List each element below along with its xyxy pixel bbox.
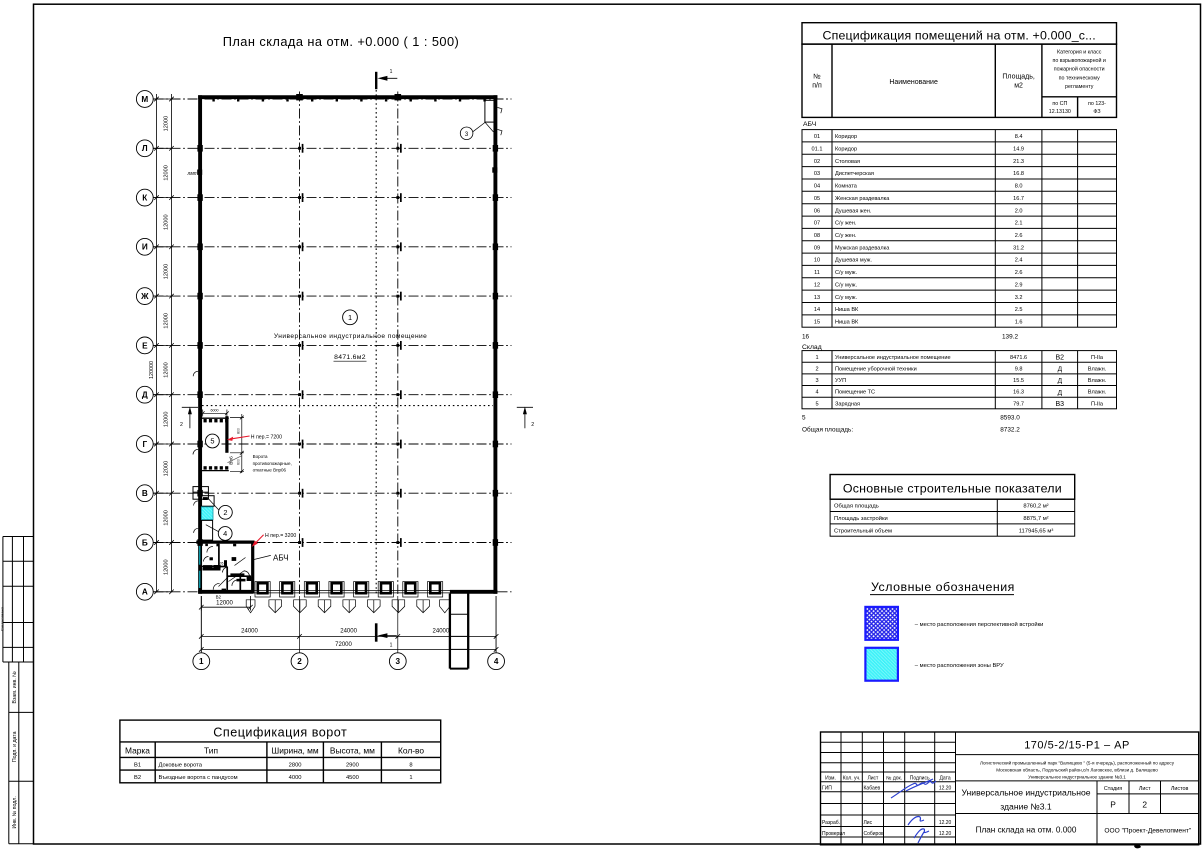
svg-text:Высота, мм: Высота, мм	[330, 745, 375, 755]
svg-text:П-IIа: П-IIа	[1091, 355, 1104, 361]
svg-text:Помещение ТС: Помещение ТС	[835, 390, 875, 396]
svg-text:05: 05	[814, 196, 820, 202]
svg-text:06: 06	[814, 208, 820, 214]
svg-text:05: 05	[220, 561, 224, 565]
svg-text:8.0: 8.0	[1015, 184, 1023, 190]
svg-text:117945,65 м³: 117945,65 м³	[1019, 528, 1054, 534]
svg-text:13: 13	[814, 295, 820, 301]
svg-text:8.4: 8.4	[1015, 134, 1023, 140]
svg-text:2.4: 2.4	[1015, 258, 1023, 264]
svg-text:Условные обозначения: Условные обозначения	[871, 580, 1015, 594]
svg-text:В2: В2	[134, 775, 141, 781]
svg-text:Склад: Склад	[802, 344, 822, 351]
svg-text:откатные Впр06: откатные Впр06	[253, 468, 287, 473]
svg-text:1: 1	[348, 313, 352, 322]
svg-text:16.7: 16.7	[1013, 196, 1024, 202]
svg-text:Н пер.= 3200: Н пер.= 3200	[265, 533, 296, 539]
svg-text:1: 1	[199, 657, 204, 666]
svg-text:8593.0: 8593.0	[1000, 414, 1020, 421]
svg-text:В1: В1	[134, 762, 141, 768]
svg-text:12000: 12000	[164, 313, 170, 329]
svg-text:по взрывопожарной и: по взрывопожарной и	[1053, 57, 1106, 64]
svg-text:11: 11	[814, 270, 820, 276]
svg-text:2.5: 2.5	[1015, 307, 1023, 313]
svg-text:Логистический промышленный пар: Логистический промышленный парк "Валищев…	[980, 759, 1175, 765]
svg-text:2: 2	[531, 422, 534, 428]
svg-text:2.1: 2.1	[1015, 221, 1023, 227]
svg-text:В2: В2	[216, 595, 222, 600]
svg-text:Собиров: Собиров	[864, 831, 885, 837]
svg-text:1: 1	[390, 69, 393, 75]
svg-text:С/у жен.: С/у жен.	[835, 221, 857, 227]
svg-text:16.8: 16.8	[1013, 171, 1024, 177]
svg-text:Д: Д	[1058, 389, 1063, 396]
svg-text:по техническому: по техническому	[1059, 75, 1100, 81]
svg-text:12.20: 12.20	[939, 831, 952, 837]
svg-text:Д: Д	[142, 391, 148, 400]
svg-text:А: А	[142, 588, 148, 597]
svg-text:9.8: 9.8	[1015, 366, 1023, 372]
svg-text:п/п: п/п	[812, 83, 822, 90]
svg-text:12000: 12000	[164, 412, 170, 428]
svg-text:– место расположения зоны ВРУ: – место расположения зоны ВРУ	[915, 663, 1004, 669]
svg-text:Р: Р	[1110, 800, 1116, 810]
svg-text:8760,2 м²: 8760,2 м²	[1023, 504, 1048, 510]
svg-text:Ворота: Ворота	[253, 454, 268, 459]
svg-text:Комната: Комната	[835, 184, 858, 190]
svg-text:5: 5	[815, 401, 818, 407]
svg-text:8471.6: 8471.6	[1010, 355, 1027, 361]
svg-text:Общая площадь:: Общая площадь:	[802, 426, 853, 434]
svg-text:П-IIа: П-IIа	[1091, 401, 1104, 407]
svg-text:3: 3	[815, 378, 818, 384]
svg-text:Спецификация помещений на отм.: Спецификация помещений на отм. +0.000_с.…	[823, 29, 1096, 43]
svg-text:Душевая жен.: Душевая жен.	[835, 208, 872, 214]
svg-text:600: 600	[237, 459, 241, 465]
svg-text:Площадь,: Площадь,	[1002, 74, 1034, 81]
svg-text:Д: Д	[1058, 366, 1063, 373]
svg-text:72000: 72000	[335, 642, 352, 648]
svg-text:М: М	[141, 95, 148, 104]
svg-text:Лист: Лист	[867, 775, 879, 781]
svg-text:12.20: 12.20	[939, 785, 952, 791]
svg-text:Ниша ВК: Ниша ВК	[835, 307, 859, 313]
svg-text:– место расположения перспекти: – место расположения перспективной встро…	[915, 621, 1044, 628]
svg-text:03: 03	[814, 171, 820, 177]
svg-text:Категория и класс: Категория и класс	[1057, 50, 1102, 56]
svg-text:ФЗ: ФЗ	[1093, 109, 1100, 115]
svg-text:№: №	[813, 74, 821, 81]
svg-text:Коридор: Коридор	[835, 147, 857, 153]
svg-text:1: 1	[815, 355, 818, 361]
svg-text:Помещение уборочной техники: Помещение уборочной техники	[835, 365, 917, 372]
svg-text:УУП: УУП	[835, 378, 846, 384]
svg-text:12000: 12000	[164, 264, 170, 280]
svg-text:800: 800	[237, 428, 241, 434]
svg-text:Мужская раздевалка: Мужская раздевалка	[835, 245, 890, 251]
svg-text:170/5-2/15-Р1 – АР: 170/5-2/15-Р1 – АР	[1024, 740, 1130, 752]
svg-text:Московская область, Подольский: Московская область, Подольский район,с/п…	[996, 766, 1158, 772]
svg-text:04: 04	[814, 184, 820, 190]
svg-text:09: 09	[814, 245, 820, 251]
svg-text:В2: В2	[1056, 354, 1065, 361]
svg-text:Спецификация ворот: Спецификация ворот	[213, 726, 347, 740]
svg-text:С/у муж.: С/у муж.	[835, 295, 857, 301]
svg-text:Столовая: Столовая	[835, 159, 860, 165]
svg-text:1: 1	[390, 642, 393, 648]
svg-text:здание №3.1: здание №3.1	[1000, 802, 1052, 812]
svg-text:пожарной опасности: пожарной опасности	[1054, 66, 1105, 73]
svg-text:4: 4	[494, 657, 499, 666]
svg-text:АБЧ: АБЧ	[803, 121, 816, 128]
svg-text:регламенту: регламенту	[1065, 84, 1094, 90]
svg-text:2.6: 2.6	[1015, 233, 1023, 239]
svg-text:Въездные ворота с пандусом: Въездные ворота с пандусом	[159, 775, 238, 781]
svg-text:Универсальное индустриальное з: Универсальное индустриальное здание №3.1	[1028, 774, 1126, 779]
svg-text:Стадия: Стадия	[1104, 786, 1122, 792]
svg-text:Проверил: Проверил	[822, 831, 845, 837]
svg-text:31.2: 31.2	[1013, 245, 1024, 251]
svg-text:План склада на отм. 0.000: План склада на отм. 0.000	[976, 825, 1077, 834]
svg-text:12000: 12000	[164, 214, 170, 230]
svg-text:8732.2: 8732.2	[1000, 427, 1020, 434]
svg-text:Универсальное индустриальное п: Универсальное индустриальное помещение	[274, 333, 427, 340]
svg-text:Влажн.: Влажн.	[1088, 366, 1107, 372]
svg-text:79.7: 79.7	[1013, 401, 1024, 407]
svg-text:21.3: 21.3	[1013, 159, 1024, 165]
svg-text:План склада на отм. +0.000 ( 1: План склада на отм. +0.000 ( 1 : 500)	[223, 34, 460, 49]
svg-text:Ниша ВК: Ниша ВК	[835, 320, 859, 326]
svg-text:Наименование: Наименование	[889, 79, 938, 86]
svg-text:Кол. уч.: Кол. уч.	[843, 775, 861, 781]
svg-text:Основные строительные показате: Основные строительные показатели	[843, 482, 1062, 496]
svg-text:4000: 4000	[289, 775, 302, 781]
svg-text:Разраб.: Разраб.	[822, 820, 840, 826]
svg-text:08: 08	[814, 233, 820, 239]
svg-text:Кол-во: Кол-во	[398, 745, 424, 755]
svg-text:12000: 12000	[164, 116, 170, 132]
svg-text:12000: 12000	[164, 559, 170, 575]
svg-text:3: 3	[396, 657, 401, 666]
svg-text:Зарядная: Зарядная	[835, 401, 860, 407]
svg-text:12000: 12000	[164, 510, 170, 526]
svg-text:Д: Д	[1058, 378, 1063, 385]
svg-text:12.20: 12.20	[939, 820, 952, 826]
svg-text:Л: Л	[142, 144, 148, 153]
svg-text:Доковые ворота: Доковые ворота	[159, 762, 203, 768]
svg-text:3.2: 3.2	[1015, 295, 1023, 301]
svg-text:5: 5	[210, 437, 214, 446]
svg-text:Общая площадь: Общая площадь	[834, 504, 879, 510]
svg-text:12000: 12000	[164, 362, 170, 378]
svg-text:12: 12	[814, 282, 820, 288]
svg-text:12000: 12000	[216, 600, 233, 606]
svg-text:Подпись: Подпись	[910, 775, 930, 781]
svg-text:8471.6м2: 8471.6м2	[334, 354, 366, 361]
svg-text:Универсальное индустриальное п: Универсальное индустриальное помещение	[835, 355, 951, 361]
svg-text:Ширина, мм: Ширина, мм	[272, 745, 319, 755]
svg-text:15.5: 15.5	[1013, 378, 1024, 384]
svg-text:по 123-: по 123-	[1088, 101, 1106, 107]
svg-text:С/у муж.: С/у муж.	[835, 282, 857, 288]
svg-text:Г: Г	[142, 440, 147, 449]
svg-text:Взам. инв. №: Взам. инв. №	[12, 671, 18, 704]
svg-text:Женская раздевалка: Женская раздевалка	[835, 196, 890, 202]
svg-text:Универсальное индустриальное: Универсальное индустриальное	[961, 788, 1090, 798]
svg-text:ГИП: ГИП	[822, 785, 832, 791]
svg-text:Тип: Тип	[204, 745, 218, 755]
svg-text:4: 4	[815, 390, 818, 396]
svg-text:2800: 2800	[289, 762, 302, 768]
svg-text:24000: 24000	[340, 629, 357, 635]
svg-text:Е: Е	[142, 341, 148, 350]
svg-text:24000: 24000	[241, 629, 258, 635]
svg-text:2.6: 2.6	[1015, 270, 1023, 276]
svg-text:Кабаев: Кабаев	[864, 785, 881, 791]
svg-text:С/у муж.: С/у муж.	[835, 270, 857, 276]
svg-text:01.1: 01.1	[812, 147, 823, 153]
svg-text:2: 2	[1142, 800, 1147, 810]
svg-text:6000: 6000	[211, 409, 219, 413]
svg-text:Н пер.= 7200: Н пер.= 7200	[251, 434, 282, 440]
svg-text:по СП: по СП	[1052, 101, 1067, 107]
svg-text:Согласовано: Согласовано	[0, 606, 5, 631]
svg-text:14: 14	[814, 307, 820, 313]
svg-text:АБЧ: АБЧ	[273, 554, 289, 563]
svg-text:Лист: Лист	[1139, 786, 1151, 792]
svg-text:15: 15	[814, 320, 820, 326]
svg-text:м2: м2	[1014, 83, 1023, 90]
svg-text:И: И	[142, 243, 148, 252]
svg-text:Диспетчерская: Диспетчерская	[835, 171, 874, 177]
svg-text:противопожарные,: противопожарные,	[253, 461, 292, 466]
svg-text:Строительный объем: Строительный объем	[834, 527, 892, 534]
svg-text:5: 5	[802, 414, 806, 421]
svg-text:Листов: Листов	[1171, 786, 1189, 792]
svg-text:Коридор: Коридор	[835, 134, 857, 140]
svg-text:2: 2	[223, 508, 227, 517]
svg-text:14.9: 14.9	[1013, 147, 1024, 153]
svg-text:Дата: Дата	[940, 775, 951, 781]
svg-text:2.0: 2.0	[1015, 208, 1023, 214]
svg-text:Площадь застройки: Площадь застройки	[834, 515, 888, 522]
svg-text:Инв. № подл.: Инв. № подл.	[12, 796, 18, 828]
svg-text:4: 4	[223, 529, 227, 538]
svg-text:16.3: 16.3	[1013, 390, 1024, 396]
svg-text:Лис: Лис	[864, 820, 873, 826]
svg-text:120000: 120000	[149, 361, 155, 379]
svg-text:2: 2	[297, 657, 302, 666]
svg-text:1: 1	[409, 775, 412, 781]
svg-text:139.2: 139.2	[1002, 334, 1018, 341]
svg-text:8: 8	[409, 762, 412, 768]
svg-text:С/у жен.: С/у жен.	[835, 233, 857, 239]
svg-text:Душевая муж.: Душевая муж.	[835, 258, 872, 264]
svg-text:16: 16	[802, 334, 810, 341]
svg-text:В: В	[142, 489, 148, 498]
svg-text:4500: 4500	[346, 775, 359, 781]
svg-text:8875,7 м²: 8875,7 м²	[1023, 516, 1048, 522]
svg-text:Вп6: Вп6	[228, 456, 234, 465]
svg-text:лмп: лмп	[187, 171, 197, 177]
svg-text:02: 02	[814, 159, 820, 165]
svg-text:№ док.: № док.	[886, 775, 902, 781]
svg-text:Влажн.: Влажн.	[1088, 390, 1107, 396]
svg-text:Марка: Марка	[125, 745, 150, 755]
svg-text:ООО "Проект-Девелопмент": ООО "Проект-Девелопмент"	[1104, 827, 1192, 834]
svg-text:12000: 12000	[164, 461, 170, 477]
svg-text:Изм.: Изм.	[825, 775, 836, 781]
svg-text:10: 10	[814, 258, 820, 264]
svg-text:2: 2	[180, 422, 183, 428]
svg-text:07: 07	[814, 221, 820, 227]
svg-text:1.6: 1.6	[1015, 320, 1023, 326]
svg-text:Влажн.: Влажн.	[1088, 378, 1107, 384]
svg-text:12000: 12000	[164, 165, 170, 181]
svg-text:2900: 2900	[346, 762, 359, 768]
svg-text:01: 01	[814, 134, 820, 140]
svg-text:24000: 24000	[433, 629, 450, 635]
svg-text:Подп. и дата: Подп. и дата	[12, 731, 18, 762]
svg-text:2: 2	[815, 366, 818, 372]
svg-text:2.9: 2.9	[1015, 282, 1023, 288]
svg-text:12.13130: 12.13130	[1049, 109, 1071, 115]
svg-text:Б: Б	[142, 538, 148, 547]
svg-text:В3: В3	[1056, 401, 1065, 408]
svg-text:Ж: Ж	[140, 292, 149, 301]
